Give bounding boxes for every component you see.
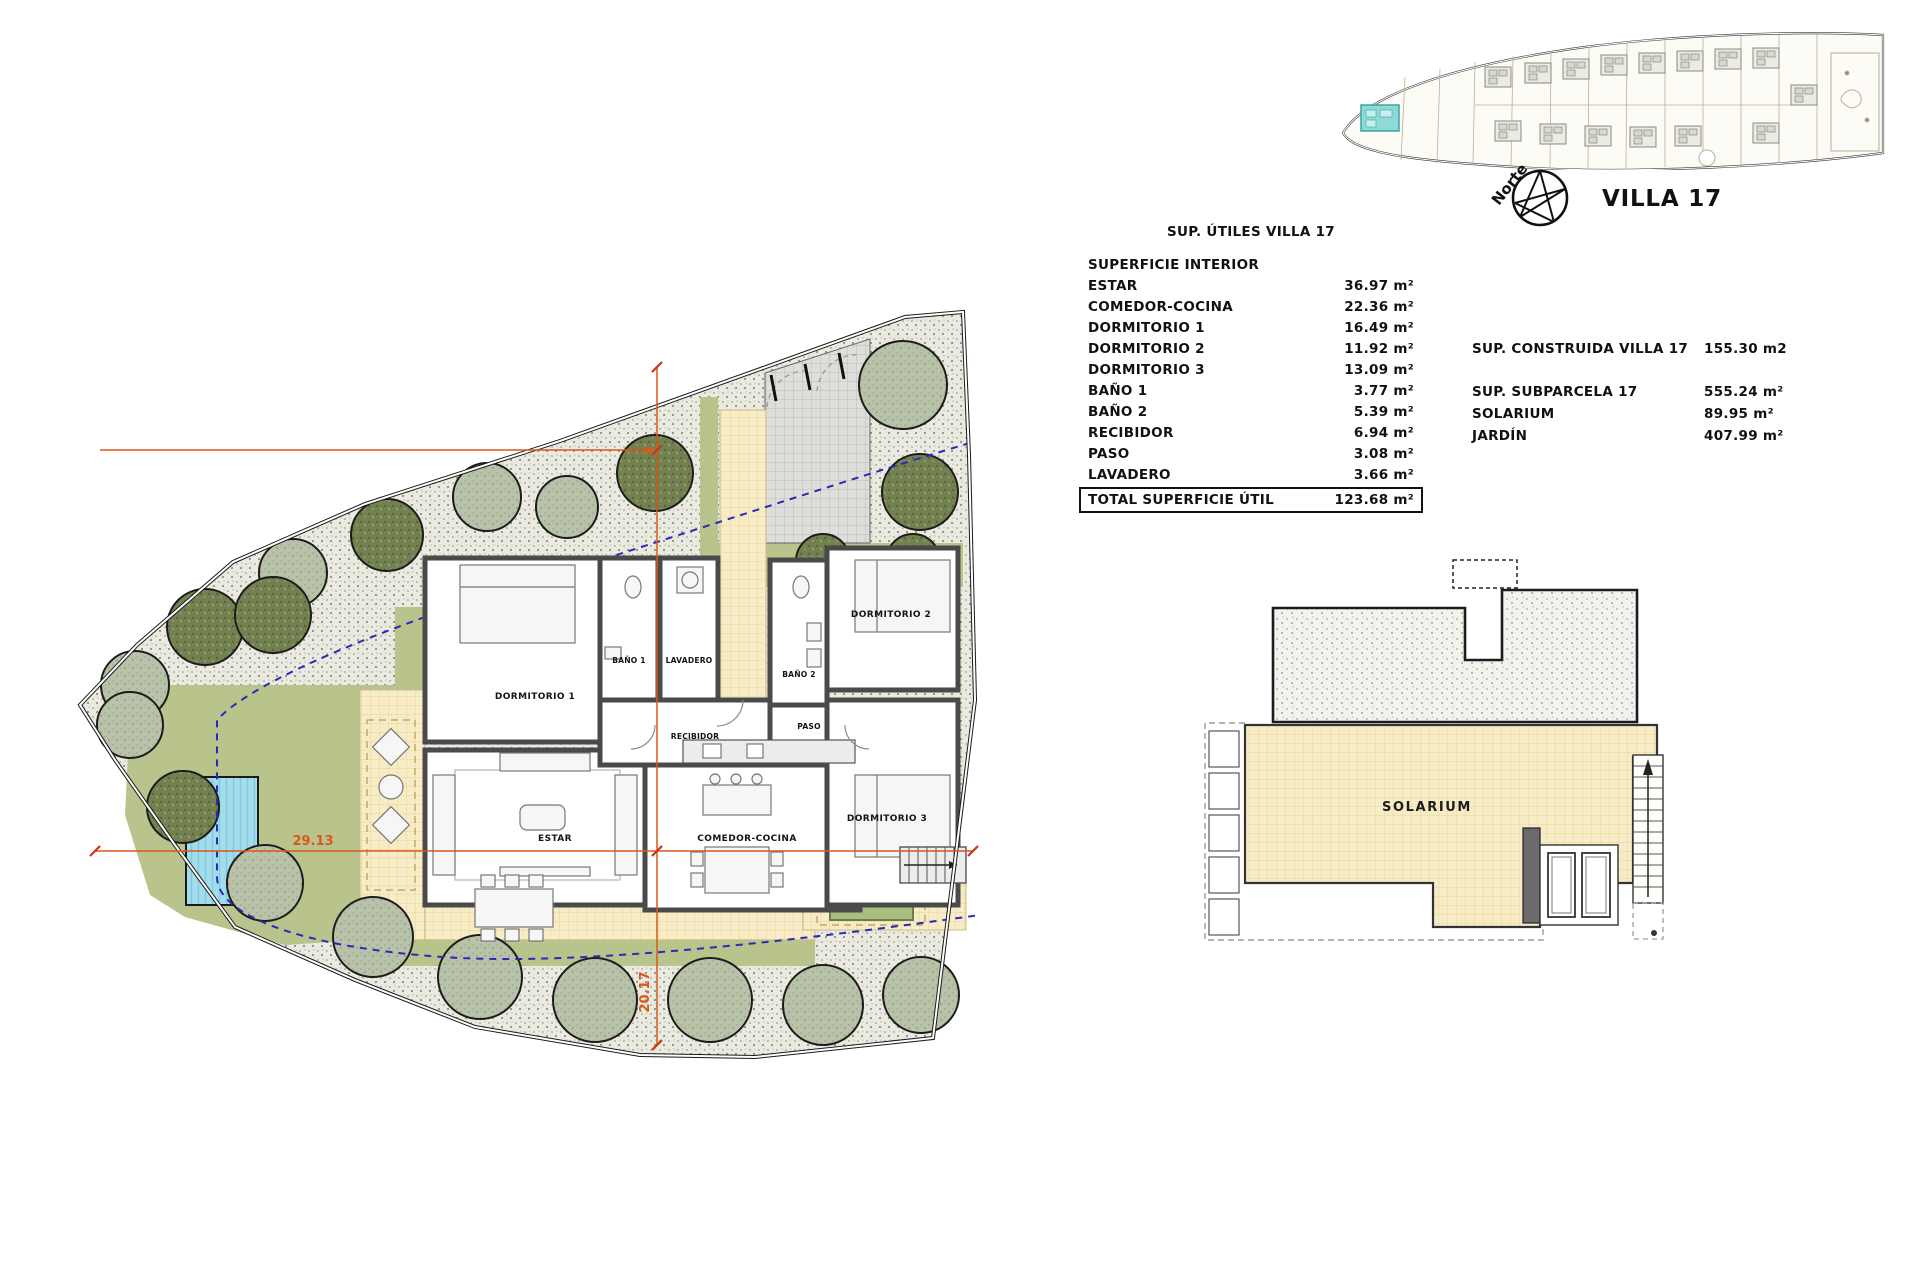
room-label-bano2: BAÑO 2 <box>782 670 816 679</box>
table-row: DORMITORIO 211.92 m² <box>1088 339 1414 360</box>
table-row: ESTAR36.97 m² <box>1088 276 1414 297</box>
solarium-plan: SOLARIUM <box>1195 545 1675 955</box>
useful-areas-table: SUP. ÚTILES VILLA 17 SUPERFICIE INTERIOR… <box>1088 224 1414 513</box>
stairs <box>1633 755 1663 939</box>
room-label-paso: PASO <box>797 722 821 731</box>
room-label-dorm2: DORMITORIO 2 <box>851 610 931 620</box>
total-value: 123.68 m² <box>1335 490 1414 510</box>
plan-sheet: 29.13 20.17 DORMITORIO 1 BAÑO 1 LAVADERO… <box>0 0 1920 1280</box>
table-row: COMEDOR-COCINA22.36 m² <box>1088 297 1414 318</box>
pillar <box>1523 828 1540 923</box>
site-plan: 29.13 20.17 DORMITORIO 1 BAÑO 1 LAVADERO… <box>55 255 985 1065</box>
summary-table: SUP. CONSTRUIDA VILLA 17155.30 m2 SUP. S… <box>1472 338 1808 447</box>
table-row: RECIBIDOR6.94 m² <box>1088 423 1414 444</box>
room-label-bano1: BAÑO 1 <box>612 656 646 665</box>
table-row: BAÑO 25.39 m² <box>1088 402 1414 423</box>
dim-vertical: 20.17 <box>638 971 653 1012</box>
dim-horizontal: 29.13 <box>292 834 333 849</box>
entrance-path <box>720 410 766 715</box>
planters <box>1209 731 1239 935</box>
area-table-title: SUP. ÚTILES VILLA 17 <box>1088 224 1414 240</box>
skylights <box>1540 845 1618 925</box>
room-label-recibidor: RECIBIDOR <box>671 732 719 741</box>
room-label-estar: ESTAR <box>538 834 572 844</box>
summary-row: SOLARIUM89.95 m² <box>1472 403 1808 425</box>
room-label-comedor: COMEDOR-COCINA <box>697 834 796 844</box>
solarium-label: SOLARIUM <box>1382 800 1472 815</box>
north-label: Norte <box>1488 160 1531 209</box>
summary-row: SUP. CONSTRUIDA VILLA 17155.30 m2 <box>1472 338 1808 360</box>
table-row: BAÑO 13.77 m² <box>1088 381 1414 402</box>
table-row: PASO3.08 m² <box>1088 444 1414 465</box>
room-label-dorm1: DORMITORIO 1 <box>495 692 575 702</box>
table-row: DORMITORIO 313.09 m² <box>1088 360 1414 381</box>
summary-row: SUP. SUBPARCELA 17555.24 m² <box>1472 381 1808 403</box>
driveway <box>765 339 870 543</box>
page-title: VILLA 17 <box>1602 186 1722 212</box>
total-label: TOTAL SUPERFICIE ÚTIL <box>1088 490 1274 510</box>
roof-area <box>1273 590 1637 722</box>
table-row: DORMITORIO 116.49 m² <box>1088 318 1414 339</box>
section-label: SUPERFICIE INTERIOR <box>1088 255 1259 276</box>
room-label-lavadero: LAVADERO <box>666 656 713 665</box>
map-notch <box>1699 150 1715 166</box>
highlighted-plot-villa17 <box>1361 105 1399 131</box>
summary-row: JARDÍN407.99 m² <box>1472 425 1808 447</box>
roof-chimney <box>1453 560 1517 588</box>
room-label-dorm3: DORMITORIO 3 <box>847 814 927 824</box>
table-row: LAVADERO3.66 m² <box>1088 465 1414 486</box>
total-row: TOTAL SUPERFICIE ÚTIL 123.68 m² <box>1079 487 1423 513</box>
